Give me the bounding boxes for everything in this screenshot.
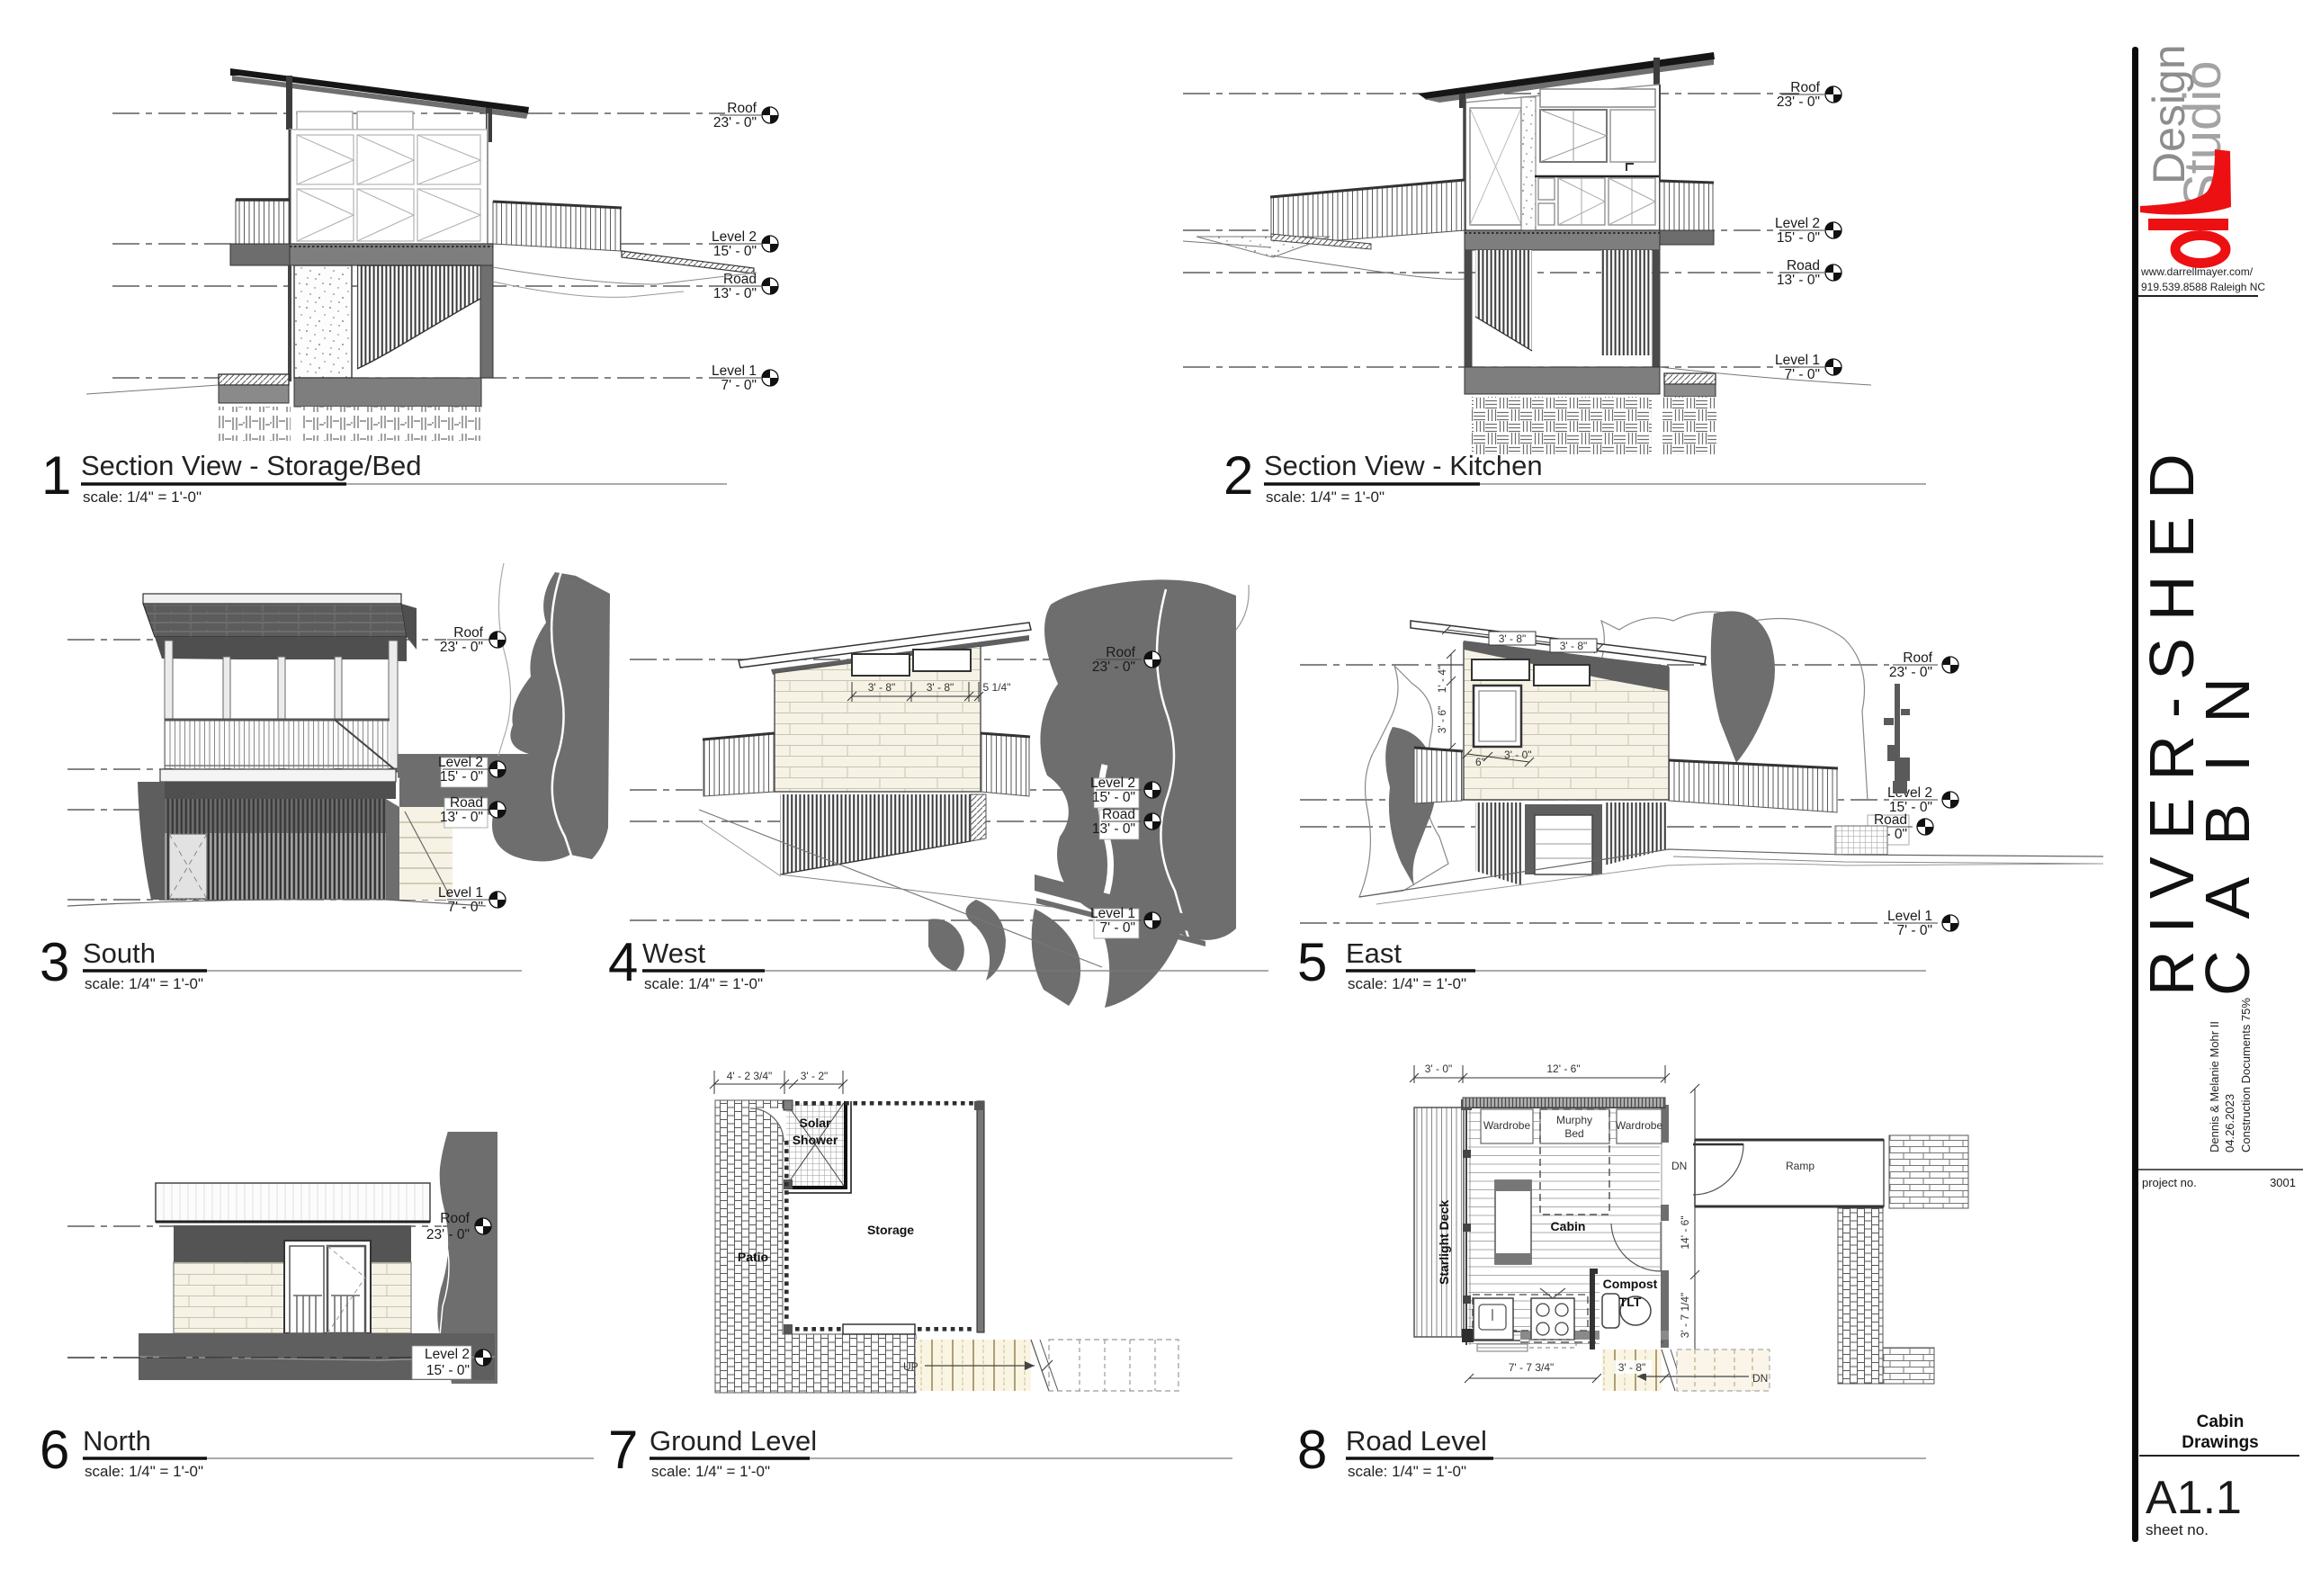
- svg-text:Roof: Roof: [727, 101, 757, 116]
- svg-text:Cabin: Cabin: [1551, 1219, 1586, 1233]
- svg-text:CABIN: CABIN: [2192, 646, 2263, 996]
- svg-text:3' - 0": 3' - 0": [1504, 749, 1532, 761]
- svg-text:Dennis & Melanie Mohr II: Dennis & Melanie Mohr II: [2208, 1021, 2221, 1152]
- svg-text:12' - 6": 12' - 6": [1546, 1063, 1580, 1075]
- svg-text:scale: 1/4" = 1'-0": scale: 1/4" = 1'-0": [85, 975, 203, 992]
- svg-text:3' - 6": 3' - 6": [1436, 706, 1448, 734]
- svg-text:23' - 0": 23' - 0": [1092, 659, 1135, 675]
- svg-text:Compost: Compost: [1603, 1277, 1658, 1291]
- svg-text:Starlight Deck: Starlight Deck: [1437, 1200, 1451, 1285]
- svg-text:Road: Road: [723, 272, 757, 287]
- svg-text:23' - 0": 23' - 0": [713, 115, 757, 130]
- svg-text:15' - 0": 15' - 0": [426, 1363, 470, 1378]
- svg-text:DN: DN: [1671, 1160, 1687, 1172]
- svg-text:7' - 0": 7' - 0": [1897, 923, 1932, 938]
- svg-text:7' - 7 3/4": 7' - 7 3/4": [1509, 1361, 1555, 1374]
- svg-text:23' - 0": 23' - 0": [440, 640, 483, 655]
- svg-text:sheet no.: sheet no.: [2146, 1521, 2209, 1538]
- svg-text:Level 2: Level 2: [1090, 776, 1135, 791]
- svg-text:7: 7: [608, 1420, 638, 1480]
- svg-text:Level 2: Level 2: [425, 1347, 470, 1362]
- svg-text:scale: 1/4" = 1'-0": scale: 1/4" = 1'-0": [1266, 489, 1384, 506]
- svg-text:13' - 0": 13' - 0": [713, 286, 757, 301]
- svg-text:Storage: Storage: [867, 1223, 914, 1237]
- svg-text:15' - 0": 15' - 0": [1777, 230, 1820, 246]
- svg-text:West: West: [642, 937, 705, 969]
- svg-text:Roof: Roof: [1903, 650, 1932, 666]
- svg-text:Level 1: Level 1: [1090, 906, 1135, 921]
- svg-text:Roof: Roof: [440, 1211, 470, 1226]
- svg-text:scale: 1/4" = 1'-0": scale: 1/4" = 1'-0": [83, 489, 202, 506]
- svg-text:14' - 6": 14' - 6": [1679, 1215, 1691, 1249]
- svg-text:Ground Level: Ground Level: [650, 1425, 817, 1457]
- svg-text:Solar: Solar: [799, 1116, 831, 1130]
- svg-text:Road: Road: [1787, 258, 1820, 273]
- svg-text:23' - 0": 23' - 0": [426, 1227, 470, 1242]
- svg-text:Roof: Roof: [1106, 645, 1135, 660]
- svg-text:1' - 4": 1' - 4": [1436, 666, 1448, 694]
- svg-text:Patio: Patio: [738, 1250, 768, 1264]
- svg-text:3: 3: [40, 932, 69, 992]
- svg-text:04.26.2023: 04.26.2023: [2223, 1094, 2236, 1152]
- svg-text:3' - 8": 3' - 8": [1499, 632, 1527, 645]
- svg-text:scale: 1/4" = 1'-0": scale: 1/4" = 1'-0": [1348, 1463, 1466, 1480]
- svg-text:Road: Road: [450, 795, 483, 811]
- svg-text:3' - 8": 3' - 8": [927, 681, 954, 694]
- svg-text:15' - 0": 15' - 0": [713, 244, 757, 259]
- svg-text:1: 1: [41, 445, 71, 506]
- svg-text:3001: 3001: [2270, 1176, 2296, 1189]
- svg-text:Level 2: Level 2: [438, 755, 483, 770]
- svg-text:3' - 2": 3' - 2": [801, 1070, 829, 1082]
- svg-text:East: East: [1346, 937, 1402, 969]
- svg-text:Road: Road: [1102, 807, 1135, 822]
- svg-text:Ramp: Ramp: [1786, 1160, 1815, 1172]
- svg-text:15' - 0": 15' - 0": [1092, 790, 1135, 805]
- svg-text:13' - 0": 13' - 0": [1777, 273, 1820, 288]
- svg-text:919.539.8588 Raleigh NC: 919.539.8588 Raleigh NC: [2141, 281, 2265, 293]
- svg-text:UP: UP: [903, 1360, 919, 1373]
- svg-text:Wardrobe: Wardrobe: [1616, 1119, 1663, 1132]
- svg-text:3' - 8": 3' - 8": [1560, 640, 1588, 652]
- svg-text:North: North: [83, 1425, 151, 1457]
- svg-text:Section View - Storage/Bed: Section View - Storage/Bed: [81, 450, 422, 481]
- svg-text:scale: 1/4" = 1'-0": scale: 1/4" = 1'-0": [1348, 975, 1466, 992]
- svg-text:5 1/4": 5 1/4": [983, 681, 1011, 694]
- svg-text:4: 4: [608, 932, 638, 992]
- svg-text:13' - 0": 13' - 0": [1092, 821, 1135, 837]
- svg-text:4' - 2 3/4": 4' - 2 3/4": [727, 1070, 773, 1082]
- svg-text:Bed: Bed: [1564, 1127, 1583, 1140]
- svg-text:Road: Road: [1874, 812, 1907, 828]
- svg-text:Shower: Shower: [793, 1133, 838, 1147]
- svg-text:project no.: project no.: [2142, 1176, 2197, 1189]
- svg-text:5: 5: [1297, 932, 1327, 992]
- svg-text:Murphy: Murphy: [1556, 1114, 1592, 1126]
- svg-text:scale: 1/4" = 1'-0": scale: 1/4" = 1'-0": [644, 975, 763, 992]
- svg-text:3' - 8": 3' - 8": [1618, 1361, 1646, 1374]
- svg-text:Roof: Roof: [453, 625, 483, 641]
- svg-text:Section View - Kitchen: Section View - Kitchen: [1264, 450, 1543, 481]
- svg-text:Level 1: Level 1: [438, 885, 483, 901]
- svg-text:TLT: TLT: [1619, 1295, 1642, 1309]
- svg-text:Drawings: Drawings: [2182, 1433, 2259, 1452]
- svg-text:A1.1: A1.1: [2146, 1472, 2242, 1524]
- svg-text:Roof: Roof: [1790, 80, 1820, 95]
- svg-text:2: 2: [1223, 445, 1253, 506]
- svg-text:Level 2: Level 2: [1775, 216, 1820, 231]
- svg-text:6: 6: [40, 1420, 69, 1480]
- svg-text:3' - 0": 3' - 0": [1425, 1063, 1453, 1075]
- svg-text:Level 1: Level 1: [1775, 353, 1820, 368]
- svg-text:Level 1: Level 1: [1887, 909, 1932, 924]
- svg-text:Wardrobe: Wardrobe: [1483, 1119, 1531, 1132]
- svg-text:South: South: [83, 937, 156, 969]
- svg-text:Level 2: Level 2: [712, 229, 757, 245]
- svg-text:6": 6": [1475, 756, 1485, 768]
- svg-text:scale: 1/4" = 1'-0": scale: 1/4" = 1'-0": [85, 1463, 203, 1480]
- svg-text:3' - 7 1/4": 3' - 7 1/4": [1679, 1293, 1691, 1339]
- svg-text:15' - 0": 15' - 0": [440, 769, 483, 785]
- svg-text:7' - 0": 7' - 0": [721, 378, 757, 393]
- svg-text:13' - 0": 13' - 0": [440, 810, 483, 825]
- svg-text:Construction Documents 75%: Construction Documents 75%: [2239, 998, 2253, 1152]
- svg-text:7' - 0": 7' - 0": [448, 900, 483, 915]
- svg-text:scale: 1/4" = 1'-0": scale: 1/4" = 1'-0": [651, 1463, 770, 1480]
- svg-text:www.darrellmayer.com/: www.darrellmayer.com/: [2140, 265, 2254, 278]
- svg-text:23' - 0": 23' - 0": [1777, 94, 1820, 110]
- svg-text:3' - 8": 3' - 8": [868, 681, 896, 694]
- svg-text:DN: DN: [1752, 1372, 1768, 1385]
- svg-text:Road Level: Road Level: [1346, 1425, 1487, 1457]
- svg-text:7' - 0": 7' - 0": [1100, 920, 1135, 936]
- svg-text:Level 1: Level 1: [712, 363, 757, 379]
- svg-text:Cabin: Cabin: [2197, 1412, 2245, 1431]
- svg-text:8: 8: [1297, 1420, 1327, 1480]
- svg-text:23' - 0": 23' - 0": [1889, 665, 1932, 680]
